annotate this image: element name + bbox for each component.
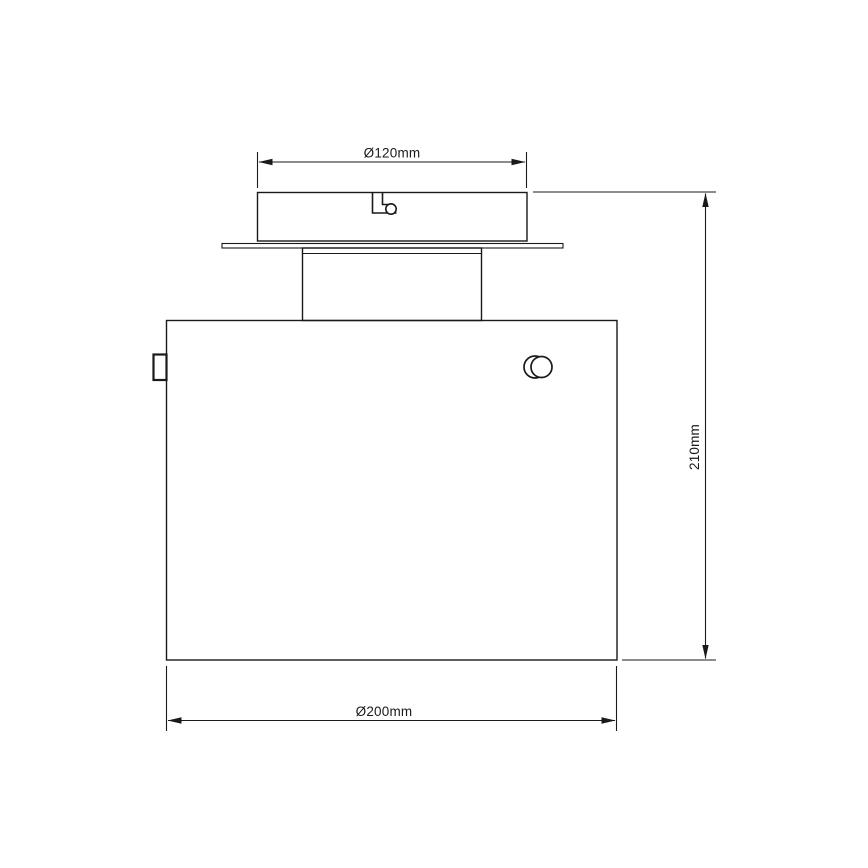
dimension-fixture-height: 210mm <box>533 192 716 660</box>
dimension-label-canopy-diameter: Ø120mm <box>364 146 421 161</box>
cable-clamp-icon <box>373 193 397 214</box>
side-tab <box>154 355 167 381</box>
arrowhead-left-icon <box>259 159 273 165</box>
arrowhead-down-icon <box>702 645 708 659</box>
clamp-inner-edge <box>383 193 391 205</box>
stem-outline <box>303 248 482 321</box>
side-tab-outline <box>154 355 167 381</box>
arrowhead-right-icon <box>602 717 616 723</box>
clamp-screw-icon <box>386 204 396 214</box>
canopy-outline <box>258 193 528 242</box>
dimension-canopy-diameter: Ø120mm <box>258 146 527 189</box>
drawing-canvas: Ø120mm 210mm Ø200mm <box>0 0 868 868</box>
arrowhead-left-icon <box>168 717 182 723</box>
mounting-canopy <box>258 193 528 242</box>
arrowhead-up-icon <box>702 193 708 207</box>
arrowhead-right-icon <box>512 159 526 165</box>
fixture-line-drawing: Ø120mm 210mm Ø200mm <box>0 0 868 868</box>
knob-front-circle <box>531 357 552 378</box>
stem <box>303 248 482 321</box>
adjustment-knob <box>524 356 552 378</box>
dimension-label-shade-diameter: Ø200mm <box>356 704 413 719</box>
dimension-shade-diameter: Ø200mm <box>167 666 617 731</box>
dimension-label-fixture-height: 210mm <box>687 424 702 470</box>
